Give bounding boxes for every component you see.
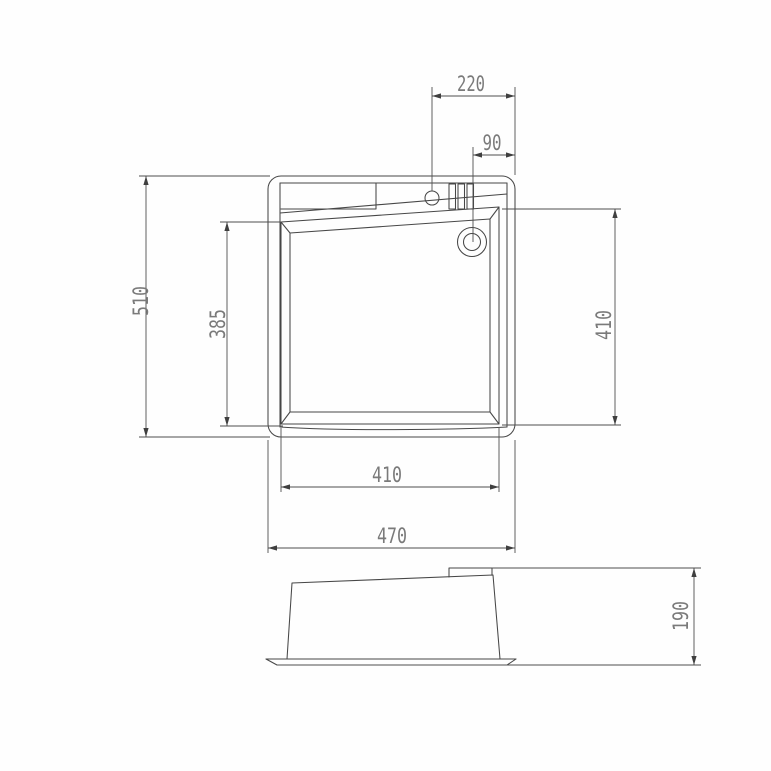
basin-rim [281,207,499,424]
side-body [287,575,500,659]
dim-470-label: 470 [377,524,407,548]
bowl-corner-line-tr [490,207,499,219]
dim-220-arrow-right [506,93,515,98]
drain-inner-circle [464,234,481,251]
dim-410b-arrow-left [281,484,290,489]
dim-470-arrow-right [506,545,515,550]
basin-bowl [290,219,490,412]
bowl-corner-line-bl [281,412,290,424]
dim-385-arrow-top [224,222,229,231]
dimension-90: 90 [473,131,515,242]
side-flange-right-tip [507,659,516,665]
dim-410b-arrow-right [490,484,499,489]
bowl-corner-line-br [490,412,499,424]
dim-190-arrow-bottom [691,656,696,665]
dim-220-label: 220 [457,72,485,96]
side-flange-left-tip [266,659,277,665]
dim-190-arrow-top [691,568,696,577]
dimension-385: 385 [206,222,283,426]
dimension-410-bottom: 410 [281,428,499,492]
deck-inner-bottom-edge [280,427,507,430]
overflow-slot-1 [449,184,456,209]
dim-410b-label: 410 [372,463,402,487]
dim-510-label: 510 [129,286,153,316]
deck-recess [281,183,376,209]
dim-410r-label: 410 [592,310,616,340]
dim-385-label: 385 [206,309,230,339]
dim-410r-arrow-top [612,209,617,218]
dim-470-arrow-left [268,545,277,550]
dimension-410-right: 410 [502,209,621,425]
dim-90-arrow-right [506,152,515,157]
dimension-190: 190 [277,568,701,665]
dim-410r-arrow-bottom [612,416,617,425]
sink-outer-rim [268,176,515,437]
dim-510-arrow-top [143,176,148,185]
dim-220-arrow-left [432,93,441,98]
dim-385-arrow-bottom [224,417,229,426]
technical-drawing-canvas: 220 90 510 385 410 [0,0,771,771]
overflow-slot-2 [458,184,465,209]
dimension-510: 510 [129,176,270,437]
plan-view [268,176,515,437]
dim-510-arrow-bottom [143,428,148,437]
dimension-470: 470 [268,440,515,553]
faucet-hole [425,191,439,205]
dim-90-arrow-left [473,152,482,157]
dimension-220: 220 [432,72,515,191]
drain-outer-circle [458,228,487,257]
side-view [266,568,516,665]
dim-190-label: 190 [669,601,693,631]
dim-90-label: 90 [483,131,502,155]
sink-dimension-drawing: 220 90 510 385 410 [0,0,771,771]
bowl-corner-line-tl [281,222,290,233]
